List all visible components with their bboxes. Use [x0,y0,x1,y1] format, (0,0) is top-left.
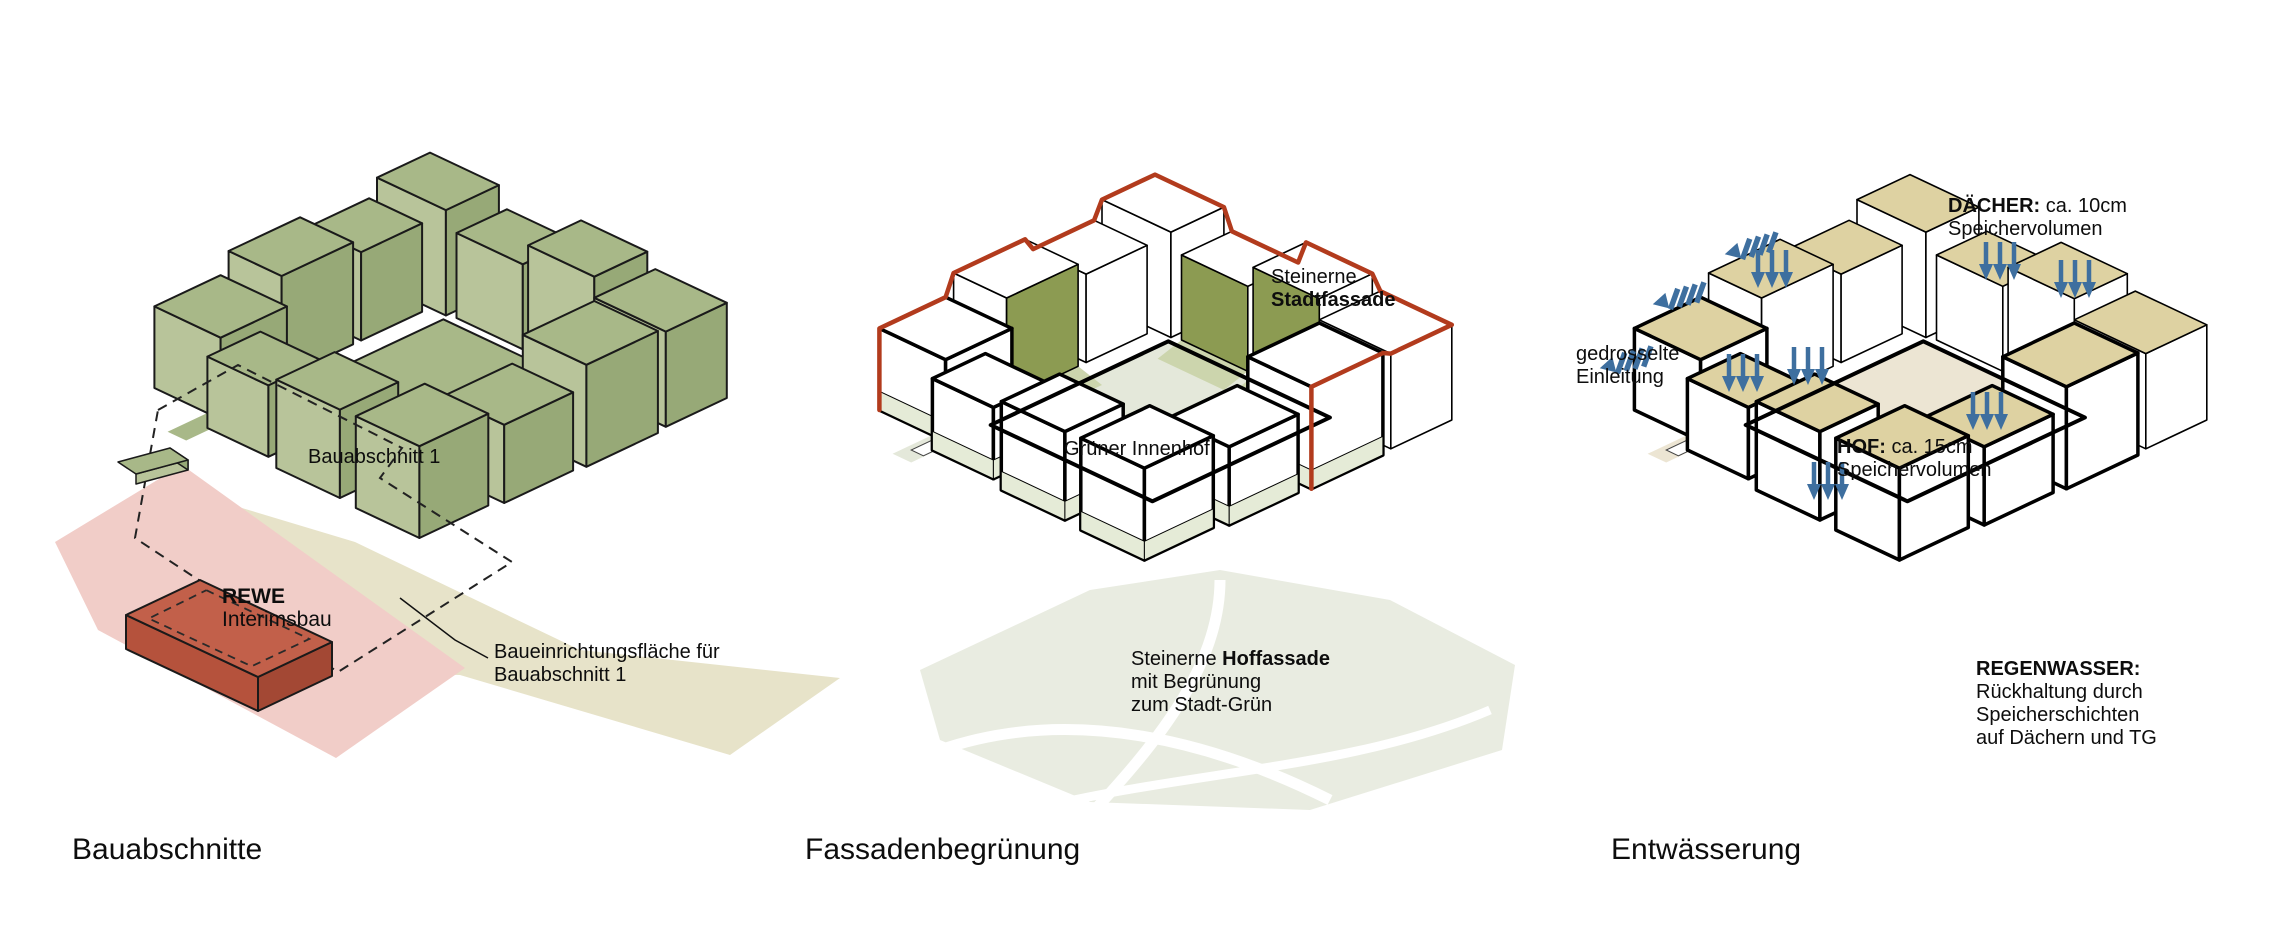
bauabschnitte-drawing [40,110,860,810]
rain-retention-arrows-icon [2054,260,2096,298]
rain-retention-arrows-icon [1966,392,2008,430]
panel-title-entwaesserung: Entwässerung [1611,833,1801,867]
stadtfassade-label: SteinerneStadtfassade [1271,266,1396,312]
rain-retention-arrows-icon [1787,347,1829,385]
rain-retention-arrows-icon [1751,250,1793,288]
bauabschnitt1-label: Bauabschnitt 1 [308,446,440,469]
hof-speichervolumen-label: HOF: ca. 15cmSpeichervolumen [1837,436,1992,482]
gruener-innenhof-label: Grüner Innenhof [1064,438,1210,461]
rain-retention-arrows-icon [1979,242,2021,280]
daecher-label: DÄCHER: ca. 10cmSpeichervolumen [1948,195,2127,241]
diagram-sheet: Bauabschnitt 1 REWEInterimsbau Baueinric… [0,0,2282,949]
rain-retention-arrows-icon [1722,354,1764,392]
regenwasser-label: REGENWASSER:Rückhaltung durchSpeichersch… [1976,658,2157,750]
rewe-interimsbau-label: REWEInterimsbau [222,585,332,631]
panel-title-bauabschnitte: Bauabschnitte [72,833,262,867]
gedrosselte-einleitung-label: gedrosselteEinleitung [1576,343,1679,389]
fassadenbegruenung-drawing [790,110,1530,830]
panel-title-fassadenbegruenung: Fassadenbegrünung [805,833,1080,867]
hoffassade-label: Steinerne Hoffassademit Begrünungzum Sta… [1131,648,1330,717]
baueinrichtungsflaeche-label: Baueinrichtungsfläche fürBauabschnitt 1 [494,641,720,687]
